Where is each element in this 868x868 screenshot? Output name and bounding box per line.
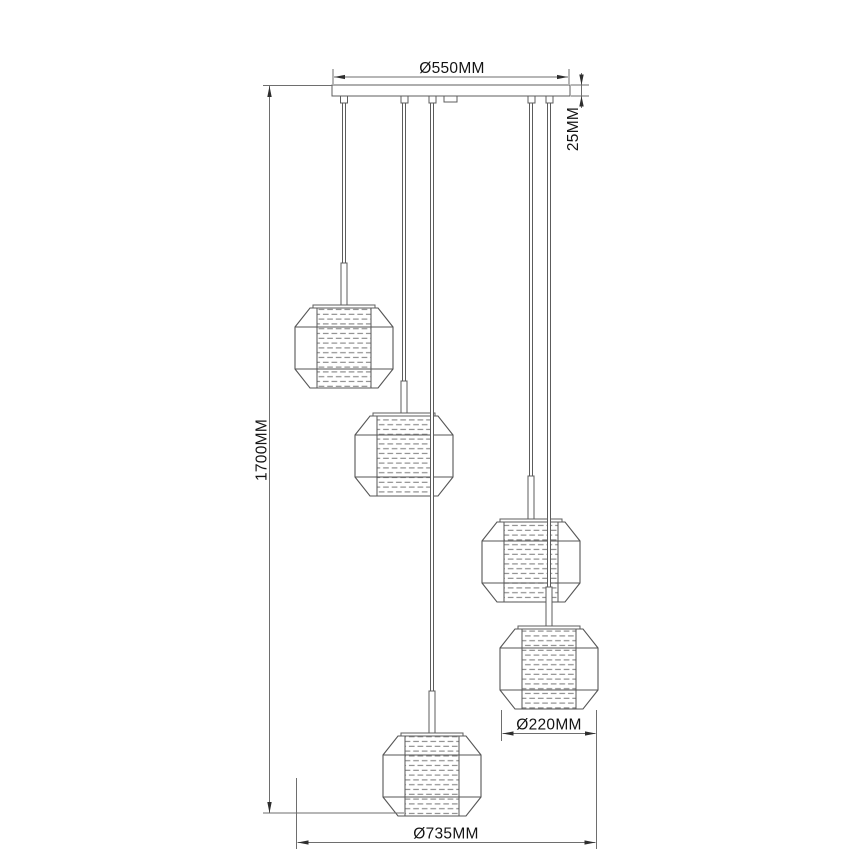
lamp-shades [295,305,598,816]
arrow-up-icon [267,86,271,97]
arrow-down-icon [579,75,583,86]
shade-mesh-panel [522,629,576,709]
canopy-diameter-label: Ø550MM [419,60,485,77]
stem [341,263,347,305]
stem [528,476,534,519]
shade-mesh-panel [317,308,371,388]
arrow-left-icon [334,75,345,79]
arrow-left-icon [503,731,514,735]
drawing-canvas: Ø550MM 25MM 1700MM Ø220MM Ø735MM [0,0,868,868]
canopy-center-box [444,96,457,102]
canopy-thickness-label: 25MM [565,107,582,151]
cord-gripper [528,96,535,103]
cord-gripper [429,96,436,103]
cord [548,103,551,587]
arrow-left-icon [298,840,309,844]
cord [343,103,346,263]
cord-gripper [546,96,553,103]
ceiling-canopy [332,85,570,103]
shade-diameter-label: Ø220MM [516,717,582,734]
cord [431,103,434,691]
shade-mesh-panel [377,416,431,496]
arrow-right-icon [557,75,568,79]
arrow-right-icon [585,840,596,844]
stem [429,691,435,733]
overall-drop-label: 1700MM [254,419,271,481]
cord-gripper [341,96,348,103]
arrow-up-icon [579,96,583,107]
canopy-bar [332,85,570,96]
stem [546,587,552,626]
pendant-lamp-dimension-drawing: Ø550MM 25MM 1700MM Ø220MM Ø735MM [0,0,868,868]
cord [530,103,533,476]
cord-gripper [401,96,408,103]
shade-mesh-panel [405,736,459,816]
dimension-canopy-diameter: Ø550MM [333,60,569,84]
arrow-right-icon [585,731,596,735]
cluster-spread-label: Ø735MM [413,826,479,843]
arrow-down-icon [267,802,271,813]
cord [403,103,406,381]
stem [401,381,407,413]
dimension-shade-diameter: Ø220MM [502,710,597,849]
